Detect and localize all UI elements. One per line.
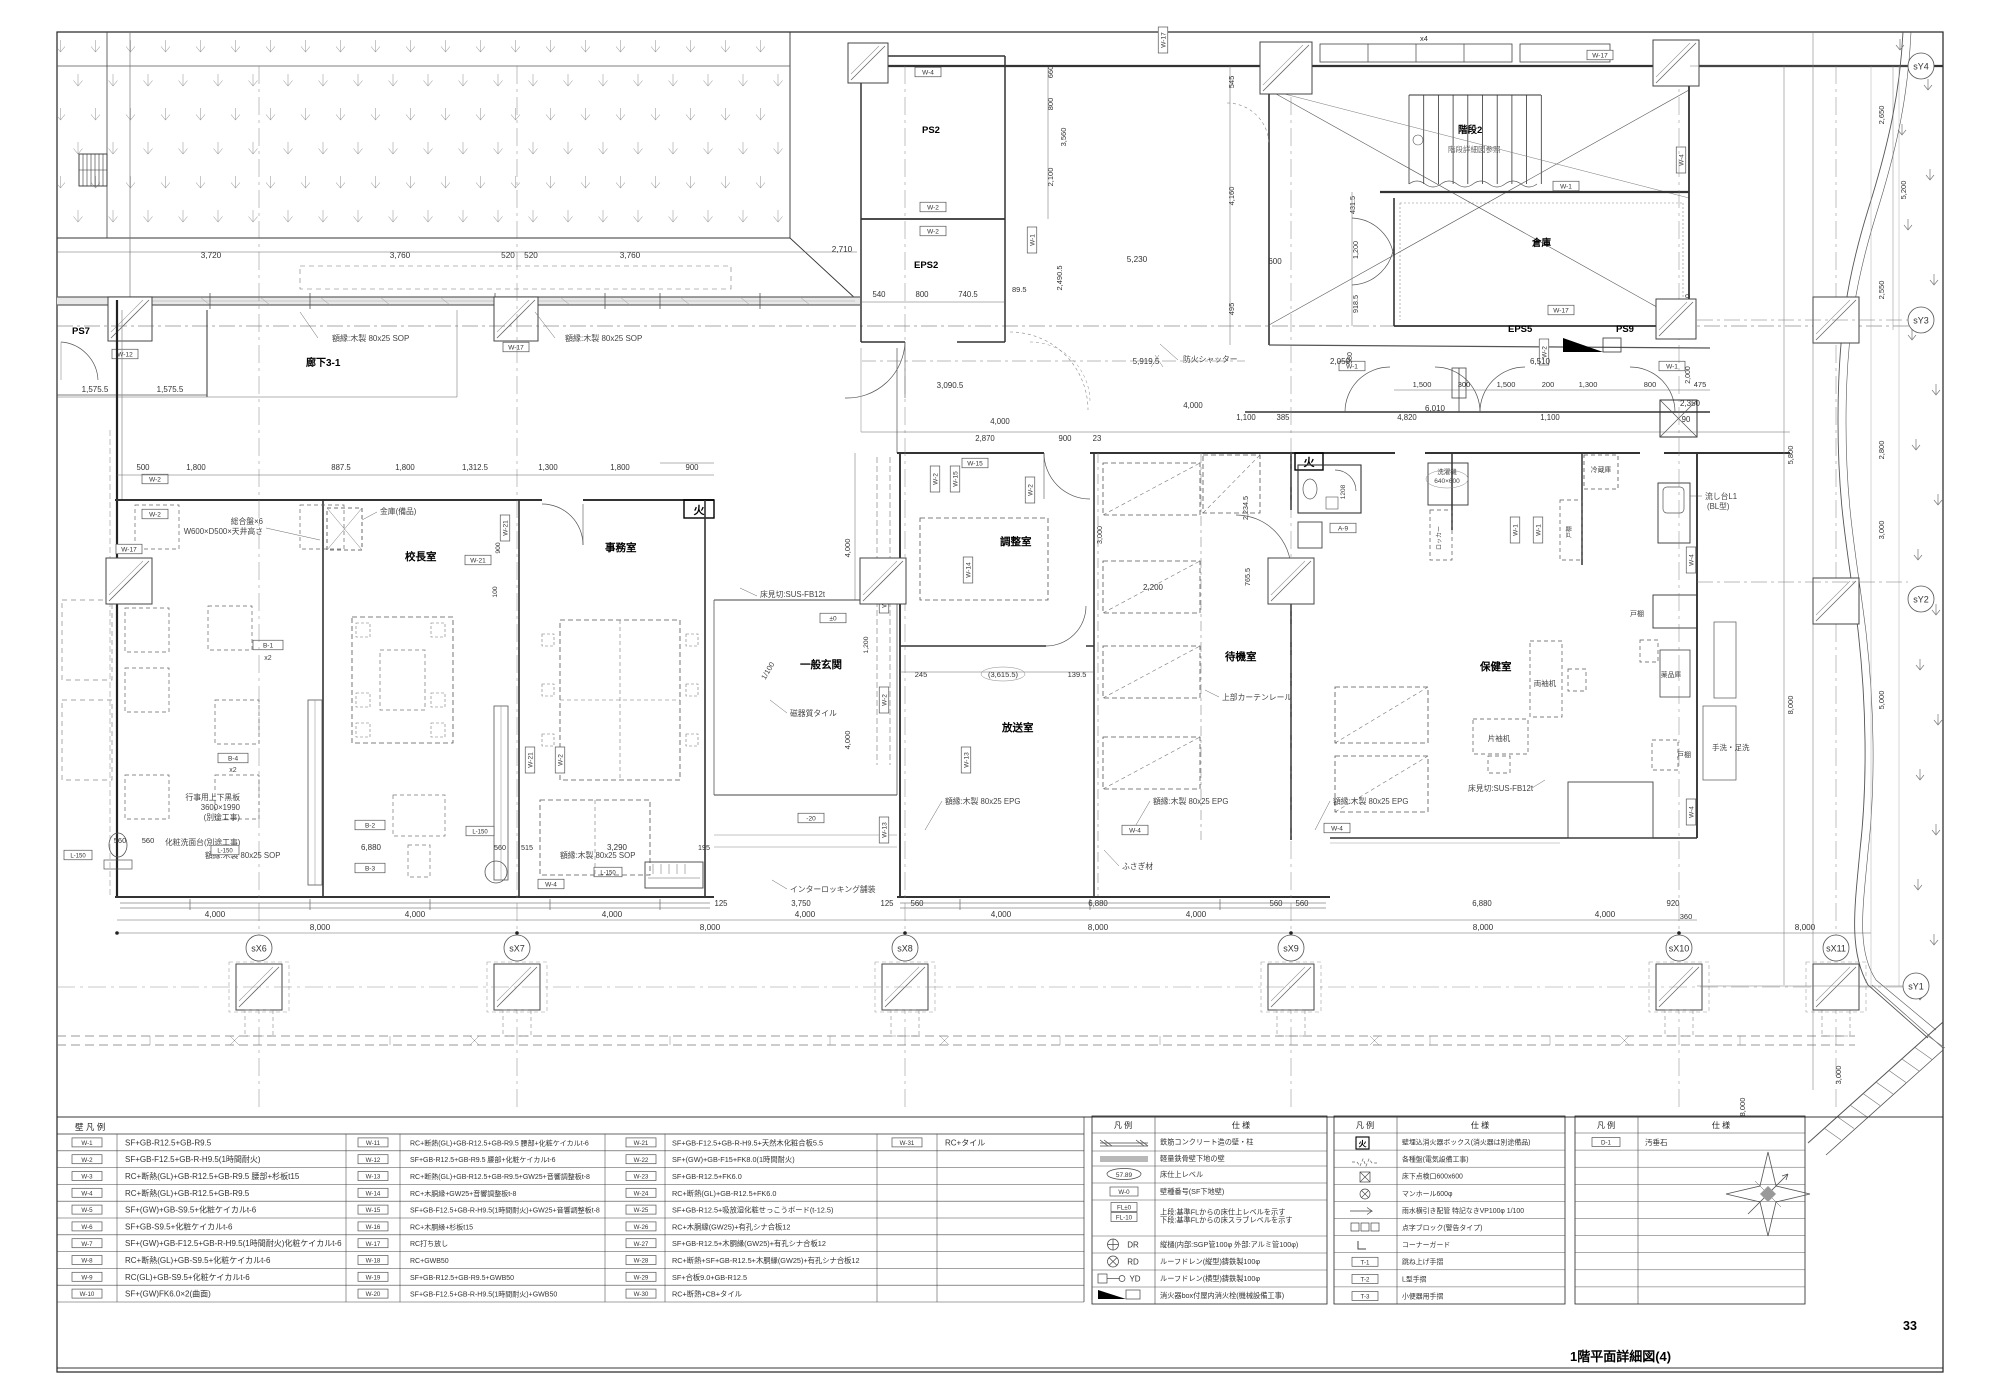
svg-text:300: 300 [1458,380,1471,389]
svg-text:火: 火 [1359,1140,1368,1149]
svg-text:-20: -20 [806,816,816,823]
svg-text:2,870: 2,870 [975,434,995,443]
svg-text:2,000: 2,000 [1685,366,1692,384]
svg-text:W-21: W-21 [528,752,535,768]
svg-text:520: 520 [524,251,538,260]
svg-text:8,000: 8,000 [1795,923,1816,932]
svg-text:RC+GWB50: RC+GWB50 [410,1258,449,1265]
svg-text:W-26: W-26 [634,1224,649,1231]
svg-text:RC+タイル: RC+タイル [945,1138,985,1147]
svg-text:2,800: 2,800 [1877,441,1886,460]
svg-text:階段2: 階段2 [1458,124,1482,136]
svg-text:W-4: W-4 [81,1190,93,1197]
svg-text:仕 様: 仕 様 [1232,1120,1250,1130]
svg-text:sY2: sY2 [1913,595,1929,605]
svg-text:W-1: W-1 [1030,234,1037,246]
svg-text:点字ブロック(警告タイプ): 点字ブロック(警告タイプ) [1402,1223,1482,1232]
svg-text:385: 385 [1276,413,1290,422]
svg-text:W-2: W-2 [558,754,565,766]
svg-text:520: 520 [501,251,515,260]
svg-text:800: 800 [1046,98,1055,111]
svg-text:DR: DR [1127,1241,1139,1250]
svg-text:200: 200 [1542,380,1555,389]
svg-text:RC+断熱(GL)+GB-R12.5+GB-R9.5 腰部+: RC+断熱(GL)+GB-R12.5+GB-R9.5 腰部+化粧ケイカルt-6 [410,1138,589,1147]
svg-text:125: 125 [880,899,894,908]
svg-text:SF+GB-R12.5+GB-R9.5: SF+GB-R12.5+GB-R9.5 [125,1138,212,1147]
svg-text:SF+GB-R12.5+GB-R9.5+GWB50: SF+GB-R12.5+GB-R9.5+GWB50 [410,1275,514,1282]
svg-text:W-12: W-12 [117,352,133,359]
svg-text:5,200: 5,200 [1899,181,1908,200]
svg-text:560: 560 [142,836,155,845]
svg-text:sX9: sX9 [1283,944,1299,954]
svg-text:ルーフドレン(縦型)鋳鉄製100φ: ルーフドレン(縦型)鋳鉄製100φ [1160,1257,1260,1266]
svg-text:4,000: 4,000 [1183,401,1203,410]
svg-text:RC+断熱(GL)+GB-R12.5+GB-R9.5: RC+断熱(GL)+GB-R12.5+GB-R9.5 [125,1188,250,1198]
svg-text:515: 515 [521,843,533,852]
svg-text:RC+断熱+SF+GB-R12.5+木胴縁(GW25)+有孔: RC+断熱+SF+GB-R12.5+木胴縁(GW25)+有孔シナ合板12 [672,1256,860,1265]
svg-text:仕 様: 仕 様 [1712,1120,1730,1130]
svg-text:SF+GB-R12.5+吸放湿化粧せっこうボード(t-12.: SF+GB-R12.5+吸放湿化粧せっこうボード(t-12.5) [672,1206,833,1215]
svg-text:sX6: sX6 [251,944,267,954]
svg-text:RC(GL)+GB-S9.5+化粧ケイカルt-6: RC(GL)+GB-S9.5+化粧ケイカルt-6 [125,1272,250,1282]
svg-text:8,000: 8,000 [1088,923,1109,932]
svg-text:W-21: W-21 [503,520,510,536]
svg-text:3,720: 3,720 [201,251,222,260]
svg-text:W-19: W-19 [366,1274,381,1281]
svg-text:1,500: 1,500 [1413,380,1432,389]
svg-text:W-2: W-2 [927,205,939,212]
svg-text:W-2: W-2 [1028,484,1035,496]
svg-text:凡 例: 凡 例 [1114,1120,1132,1130]
svg-text:W-15: W-15 [366,1207,381,1214]
svg-text:560: 560 [494,843,506,852]
svg-text:W-18: W-18 [366,1258,381,1265]
svg-text:B-4: B-4 [228,756,239,763]
svg-text:消火器box付屋内消火栓(機械設備工事): 消火器box付屋内消火栓(機械設備工事) [1160,1291,1284,1300]
svg-text:RC+断熱+CB+タイル: RC+断熱+CB+タイル [672,1290,742,1299]
svg-text:T-1: T-1 [1361,1259,1370,1266]
svg-text:W-13: W-13 [882,822,889,838]
svg-text:ロッカー: ロッカー [1436,526,1443,550]
svg-text:x4: x4 [1420,34,1428,43]
svg-text:床見切:SUS-FB12t: 床見切:SUS-FB12t [1468,783,1534,793]
svg-text:W-22: W-22 [634,1157,649,1164]
svg-text:560: 560 [114,836,127,845]
svg-text:580: 580 [1347,352,1354,364]
svg-text:4,820: 4,820 [1397,413,1417,422]
svg-text:SF+GB-R12.5+GB-R9.5 腰部+化粧ケイカルt: SF+GB-R12.5+GB-R9.5 腰部+化粧ケイカルt-6 [410,1155,556,1164]
svg-text:L型手摺: L型手摺 [1402,1274,1427,1283]
svg-text:W-14: W-14 [966,562,973,578]
svg-text:RC+断熱(GL)+GB-S9.5+化粧ケイカルt-6: RC+断熱(GL)+GB-S9.5+化粧ケイカルt-6 [125,1255,271,1265]
svg-text:1,300: 1,300 [1579,380,1598,389]
svg-text:sX11: sX11 [1826,944,1846,954]
svg-text:5,800: 5,800 [1786,446,1795,465]
svg-text:跳ね上げ手摺: 跳ね上げ手摺 [1402,1257,1443,1266]
svg-text:8,000: 8,000 [1786,696,1795,715]
svg-text:2,350: 2,350 [1680,399,1701,408]
svg-text:2,200: 2,200 [1143,583,1164,592]
svg-text:W-9: W-9 [81,1274,93,1281]
svg-text:6,880: 6,880 [1088,899,1108,908]
svg-text:PS9: PS9 [1616,324,1634,335]
svg-text:4,000: 4,000 [843,539,852,558]
svg-text:8,000: 8,000 [1738,1098,1747,1117]
svg-text:壁埋込消火器ボックス(消火器は別途備品): 壁埋込消火器ボックス(消火器は別途備品) [1402,1138,1530,1147]
svg-text:5,919.5: 5,919.5 [1133,357,1160,366]
svg-text:RC+断熱(GL)+GB-R12.5+GB-R9.5 腰部+: RC+断熱(GL)+GB-R12.5+GB-R9.5 腰部+杉板t15 [125,1171,300,1181]
svg-text:(別途工事): (別途工事) [204,812,241,822]
svg-text:4,000: 4,000 [205,910,226,919]
svg-text:W-2: W-2 [933,473,940,485]
svg-text:SF+(GW)FK6.0×2(曲面): SF+(GW)FK6.0×2(曲面) [125,1289,211,1299]
svg-text:保健室: 保健室 [1479,660,1512,673]
svg-text:W-2: W-2 [149,512,161,519]
svg-text:RC+木胴縁(GW25)+有孔シナ合板12: RC+木胴縁(GW25)+有孔シナ合板12 [672,1222,790,1231]
svg-text:±0: ±0 [829,616,837,623]
svg-text:4,000: 4,000 [795,910,816,919]
svg-text:6,880: 6,880 [1472,899,1492,908]
svg-text:薬品庫: 薬品庫 [1661,670,1682,679]
svg-text:660: 660 [1046,66,1055,79]
svg-text:W-8: W-8 [81,1258,93,1265]
svg-text:インターロッキング舗装: インターロッキング舗装 [790,884,876,894]
svg-text:W-31: W-31 [900,1140,915,1147]
svg-text:sY3: sY3 [1913,316,1929,326]
svg-text:W-13: W-13 [964,752,971,768]
svg-text:W-14: W-14 [366,1190,381,1197]
svg-text:FL±0: FL±0 [1117,1205,1132,1212]
svg-text:B-2: B-2 [365,823,376,830]
svg-text:SF+合板9.0+GB-R12.5: SF+合板9.0+GB-R12.5 [672,1273,747,1282]
svg-text:W-4: W-4 [1331,826,1343,833]
svg-text:L-150: L-150 [70,854,86,860]
svg-text:EPS2: EPS2 [914,260,938,271]
svg-text:245: 245 [915,670,928,679]
svg-text:3,000: 3,000 [1877,521,1886,540]
svg-text:W-4: W-4 [545,882,557,889]
svg-text:洗濯機: 洗濯機 [1437,467,1457,476]
svg-text:RC打ち放し: RC打ち放し [410,1239,448,1248]
svg-text:W-4: W-4 [1679,154,1686,166]
svg-text:W-7: W-7 [81,1241,93,1248]
svg-text:4,000: 4,000 [991,910,1012,919]
svg-text:W-13: W-13 [366,1174,381,1181]
svg-text:L-150: L-150 [600,871,616,877]
svg-text:倉庫: 倉庫 [1531,237,1552,249]
svg-text:6,510: 6,510 [1530,357,1551,366]
svg-text:マンホール600φ: マンホール600φ [1402,1190,1453,1198]
svg-text:800: 800 [915,290,929,299]
svg-text:4,000: 4,000 [1186,910,1207,919]
svg-text:床下点検口600x600: 床下点検口600x600 [1402,1172,1463,1181]
svg-text:SF+(GW)+GB-S9.5+化粧ケイカルt-6: SF+(GW)+GB-S9.5+化粧ケイカルt-6 [125,1205,257,1215]
svg-text:放送室: 放送室 [1001,721,1034,734]
svg-text:額縁:木製 80x25 EPG: 額縁:木製 80x25 EPG [945,796,1020,806]
svg-text:640×600: 640×600 [1434,478,1460,485]
svg-text:W-25: W-25 [634,1207,649,1214]
svg-text:1208: 1208 [1340,484,1347,499]
svg-text:W-21: W-21 [634,1140,649,1147]
svg-text:2,550: 2,550 [1877,281,1886,300]
svg-text:W-1: W-1 [81,1140,93,1147]
svg-text:2,490.5: 2,490.5 [1055,265,1064,290]
svg-text:SF+GB-S9.5+化粧ケイカルt-6: SF+GB-S9.5+化粧ケイカルt-6 [125,1221,233,1231]
svg-text:W-17: W-17 [1592,53,1608,60]
svg-text:W-2: W-2 [882,694,889,706]
svg-text:RC+木胴縁+杉板t15: RC+木胴縁+杉板t15 [410,1222,473,1231]
svg-text:W-4: W-4 [1689,806,1696,818]
svg-text:740.5: 740.5 [958,290,978,299]
svg-text:SF+GB-R12.5+FK6.0: SF+GB-R12.5+FK6.0 [672,1172,742,1181]
svg-text:4,160: 4,160 [1227,187,1236,206]
svg-text:床仕上レベル: 床仕上レベル [1160,1170,1203,1179]
svg-text:900: 900 [1058,434,1072,443]
svg-text:FL-10: FL-10 [1116,1215,1133,1222]
svg-text:額縁:木製 80x25 EPG: 額縁:木製 80x25 EPG [1153,796,1228,806]
svg-text:360: 360 [1680,912,1693,921]
svg-text:RC+木胴縁+GW25+音響調整板t-8: RC+木胴縁+GW25+音響調整板t-8 [410,1189,516,1198]
svg-text:B-3: B-3 [365,866,376,873]
svg-text:床見切:SUS-FB12t: 床見切:SUS-FB12t [760,589,826,599]
svg-text:L-150: L-150 [217,849,233,855]
svg-text:1階平面詳細図(4): 1階平面詳細図(4) [1570,1349,1671,1364]
svg-text:ふさぎ材: ふさぎ材 [1122,861,1153,871]
svg-text:軽量鉄骨壁下地の壁: 軽量鉄骨壁下地の壁 [1160,1154,1225,1163]
svg-text:縦樋(内部:SGP管100φ 外部:アルミ管100φ): 縦樋(内部:SGP管100φ 外部:アルミ管100φ) [1160,1240,1298,1249]
svg-text:火: 火 [694,504,706,517]
svg-text:B-1: B-1 [263,643,274,650]
svg-text:1,500: 1,500 [1497,380,1516,389]
svg-text:行事用上下黒板: 行事用上下黒板 [185,792,240,802]
svg-text:仕 様: 仕 様 [1471,1120,1489,1130]
svg-text:YD: YD [1129,1275,1140,1284]
svg-text:1,312.5: 1,312.5 [462,463,489,472]
svg-text:EPS5: EPS5 [1508,324,1533,335]
svg-text:3,760: 3,760 [620,251,641,260]
svg-text:W-17: W-17 [1161,32,1168,48]
svg-text:ルーフドレン(横型)鋳鉄製100φ: ルーフドレン(横型)鋳鉄製100φ [1160,1274,1260,1283]
svg-text:545: 545 [1227,76,1236,89]
svg-text:x2: x2 [229,767,237,774]
svg-text:SF+(GW)+GB-F12.5+GB-R-H9.5(1時間: SF+(GW)+GB-F12.5+GB-R-H9.5(1時間耐火)化粧ケイカルt… [125,1238,342,1248]
svg-text:階段詳細図参照: 階段詳細図参照 [1448,144,1501,154]
svg-text:各種盤(電気設備工事): 各種盤(電気設備工事) [1402,1155,1469,1164]
svg-text:火: 火 [1304,456,1316,469]
svg-text:コーナーガード: コーナーガード [1402,1240,1450,1249]
svg-text:3,090.5: 3,090.5 [937,381,964,390]
svg-text:W-2: W-2 [81,1157,93,1164]
svg-text:RD: RD [1127,1258,1139,1267]
svg-text:sY4: sY4 [1913,62,1929,72]
svg-text:SF+GB-F12.5+GB-R-H9.5(1時間耐火)+G: SF+GB-F12.5+GB-R-H9.5(1時間耐火)+GW25+音響調整板t… [410,1206,600,1215]
svg-text:1,100: 1,100 [1540,413,1560,422]
svg-text:3600×1990: 3600×1990 [201,803,241,812]
svg-text:片袖机: 片袖机 [1488,733,1511,743]
svg-text:流し台L1: 流し台L1 [1705,491,1737,501]
svg-text:RC+断熱(GL)+GB-R12.5+FK6.0: RC+断熱(GL)+GB-R12.5+FK6.0 [672,1189,776,1198]
svg-text:T-3: T-3 [1361,1294,1370,1301]
svg-text:(BL型): (BL型) [1707,502,1730,511]
svg-text:W-11: W-11 [366,1140,381,1147]
svg-text:W-3: W-3 [81,1174,93,1181]
svg-text:560: 560 [1269,899,1283,908]
svg-text:4,000: 4,000 [602,910,623,919]
svg-text:5,230: 5,230 [1127,255,1148,264]
svg-text:125: 125 [714,899,728,908]
svg-text:PS2: PS2 [922,125,940,136]
svg-text:SF+GB-R12.5+木胴縁(GW25)+有孔シナ合板12: SF+GB-R12.5+木胴縁(GW25)+有孔シナ合板12 [672,1239,826,1248]
svg-text:W-2: W-2 [149,477,161,484]
svg-text:495: 495 [1227,303,1236,316]
svg-text:額縁:木製 80x25 SOP: 額縁:木製 80x25 SOP [560,850,635,860]
svg-text:W-12: W-12 [366,1157,381,1164]
svg-text:W-5: W-5 [81,1207,93,1214]
svg-text:額縁:木製 80x25 SOP: 額縁:木製 80x25 SOP [565,333,642,343]
svg-text:4,000: 4,000 [405,910,426,919]
svg-text:500: 500 [136,463,150,472]
svg-text:800: 800 [1644,380,1657,389]
svg-text:4,000: 4,000 [843,731,852,750]
svg-text:W-30: W-30 [634,1291,649,1298]
svg-text:1,200: 1,200 [863,636,870,653]
svg-text:壁種番号(SF下地壁): 壁種番号(SF下地壁) [1160,1187,1224,1196]
svg-text:1,300: 1,300 [538,463,558,472]
svg-text:W-1: W-1 [1666,364,1678,371]
svg-text:SF+GB-F12.5+GB-R-H9.5+天然木化粧合板5: SF+GB-F12.5+GB-R-H9.5+天然木化粧合板5.5 [672,1138,823,1147]
svg-text:W-2: W-2 [927,229,939,236]
svg-text:W-1: W-1 [1536,524,1543,536]
svg-text:3,750: 3,750 [791,899,811,908]
svg-text:両袖机: 両袖机 [1534,678,1557,688]
svg-text:SF+(GW)+GB-F15+FK8.0(1時間耐火): SF+(GW)+GB-F15+FK8.0(1時間耐火) [672,1155,795,1164]
svg-text:3,000: 3,000 [1095,526,1104,544]
svg-text:89.5: 89.5 [1012,285,1027,294]
svg-text:1,575.5: 1,575.5 [82,385,109,394]
svg-text:W-24: W-24 [634,1190,649,1197]
svg-text:W-16: W-16 [366,1224,381,1231]
svg-text:5,000: 5,000 [1877,691,1886,710]
svg-text:918.5: 918.5 [1351,295,1360,313]
svg-text:T-2: T-2 [1361,1277,1370,1284]
svg-text:4,000: 4,000 [1595,910,1616,919]
svg-text:小便器用手摺: 小便器用手摺 [1402,1291,1443,1300]
svg-text:23: 23 [1093,434,1102,443]
svg-text:W-23: W-23 [634,1174,649,1181]
svg-text:8,000: 8,000 [310,923,331,932]
svg-text:3,560: 3,560 [1059,128,1068,147]
svg-text:1,800: 1,800 [610,463,630,472]
svg-text:W-17: W-17 [1553,308,1569,315]
svg-text:3,000: 3,000 [1834,1066,1843,1085]
svg-text:560: 560 [1295,899,1309,908]
svg-text:sX7: sX7 [509,944,525,954]
svg-text:手洗・足洗: 手洗・足洗 [1712,742,1750,752]
svg-text:W-29: W-29 [634,1274,649,1281]
svg-text:W-17: W-17 [366,1241,381,1248]
svg-text:2,100: 2,100 [1046,168,1055,187]
svg-text:校長室: 校長室 [405,550,437,563]
svg-text:一般玄関: 一般玄関 [800,658,842,671]
svg-text:RC+断熱(GL)+GB-R12.5+GB-R9.5+GW2: RC+断熱(GL)+GB-R12.5+GB-R9.5+GW25+音響調整板t-8 [410,1172,590,1181]
svg-text:920: 920 [1666,899,1680,908]
svg-text:540: 540 [872,290,886,299]
svg-text:鉄筋コンクリート造の壁・柱: 鉄筋コンクリート造の壁・柱 [1160,1138,1253,1147]
svg-text:上部カーテンレール: 上部カーテンレール [1222,692,1292,702]
svg-text:1,575.5: 1,575.5 [157,385,184,394]
svg-text:SF+GB-F12.5+GB-R-H9.5(1時間耐火)+G: SF+GB-F12.5+GB-R-H9.5(1時間耐火)+GWB50 [410,1290,557,1299]
svg-text:3,760: 3,760 [390,251,411,260]
svg-text:6,010: 6,010 [1425,404,1446,413]
svg-text:W-6: W-6 [81,1224,93,1231]
svg-text:冷蔵庫: 冷蔵庫 [1591,465,1612,474]
svg-text:W-1: W-1 [1560,184,1572,191]
svg-text:W-17: W-17 [508,345,524,352]
svg-text:765.5: 765.5 [1243,568,1252,586]
svg-text:W-4: W-4 [1689,554,1696,566]
svg-text:sY1: sY1 [1908,982,1924,992]
svg-text:戸棚: 戸棚 [1565,526,1573,538]
svg-text:W-20: W-20 [366,1291,381,1298]
svg-text:汚垂石: 汚垂石 [1645,1137,1668,1147]
svg-text:総合盤×6: 総合盤×6 [231,516,263,526]
svg-text:887.5: 887.5 [331,463,351,472]
svg-text:事務室: 事務室 [605,541,637,554]
svg-text:431.5: 431.5 [1348,196,1357,214]
svg-text:調整室: 調整室 [1000,535,1032,548]
svg-text:W-28: W-28 [634,1258,649,1265]
svg-text:sX8: sX8 [897,944,913,954]
svg-text:凡 例: 凡 例 [1597,1120,1615,1130]
svg-text:雨水横引き配管 特記なきVP100φ 1/100: 雨水横引き配管 特記なきVP100φ 1/100 [1402,1206,1524,1215]
svg-text:金庫(備品): 金庫(備品) [380,506,417,516]
svg-text:廊下3-1: 廊下3-1 [306,356,341,369]
svg-text:475: 475 [1694,380,1707,389]
svg-text:139.5: 139.5 [1068,670,1087,679]
svg-text:4,000: 4,000 [990,417,1010,426]
svg-text:W-15: W-15 [953,471,960,487]
svg-text:防火シャッター: 防火シャッター [1183,354,1238,364]
svg-text:560: 560 [910,899,924,908]
svg-text:2,710: 2,710 [832,245,853,254]
svg-text:待機室: 待機室 [1225,650,1257,663]
svg-text:W-21: W-21 [470,558,486,565]
svg-text:SF+GB-F12.5+GB-R-H9.5(1時間耐火): SF+GB-F12.5+GB-R-H9.5(1時間耐火) [125,1154,261,1164]
svg-text:2,650: 2,650 [1877,106,1886,125]
svg-text:磁器質タイル: 磁器質タイル [790,708,837,718]
svg-text:900: 900 [495,542,502,554]
svg-text:A-9: A-9 [1338,526,1349,533]
svg-text:W-1: W-1 [1513,524,1520,536]
svg-text:W-10: W-10 [80,1291,95,1298]
svg-text:D-1: D-1 [1601,1140,1612,1147]
svg-text:1,100: 1,100 [1236,413,1256,422]
svg-text:W-4: W-4 [1129,828,1141,835]
svg-text:90: 90 [1682,415,1691,424]
svg-text:W-4: W-4 [922,70,934,77]
svg-text:600: 600 [1268,257,1282,266]
svg-text:L-150: L-150 [472,830,488,836]
svg-text:33: 33 [1903,1319,1917,1333]
svg-text:戸棚: 戸棚 [1630,609,1644,618]
svg-text:W-17: W-17 [121,547,137,554]
svg-text:8,000: 8,000 [700,923,721,932]
svg-text:1,800: 1,800 [186,463,206,472]
svg-text:壁 凡 例: 壁 凡 例 [75,1122,105,1132]
svg-text:100: 100 [492,586,499,598]
svg-text:PS7: PS7 [72,326,90,337]
svg-text:6,880: 6,880 [361,843,382,852]
